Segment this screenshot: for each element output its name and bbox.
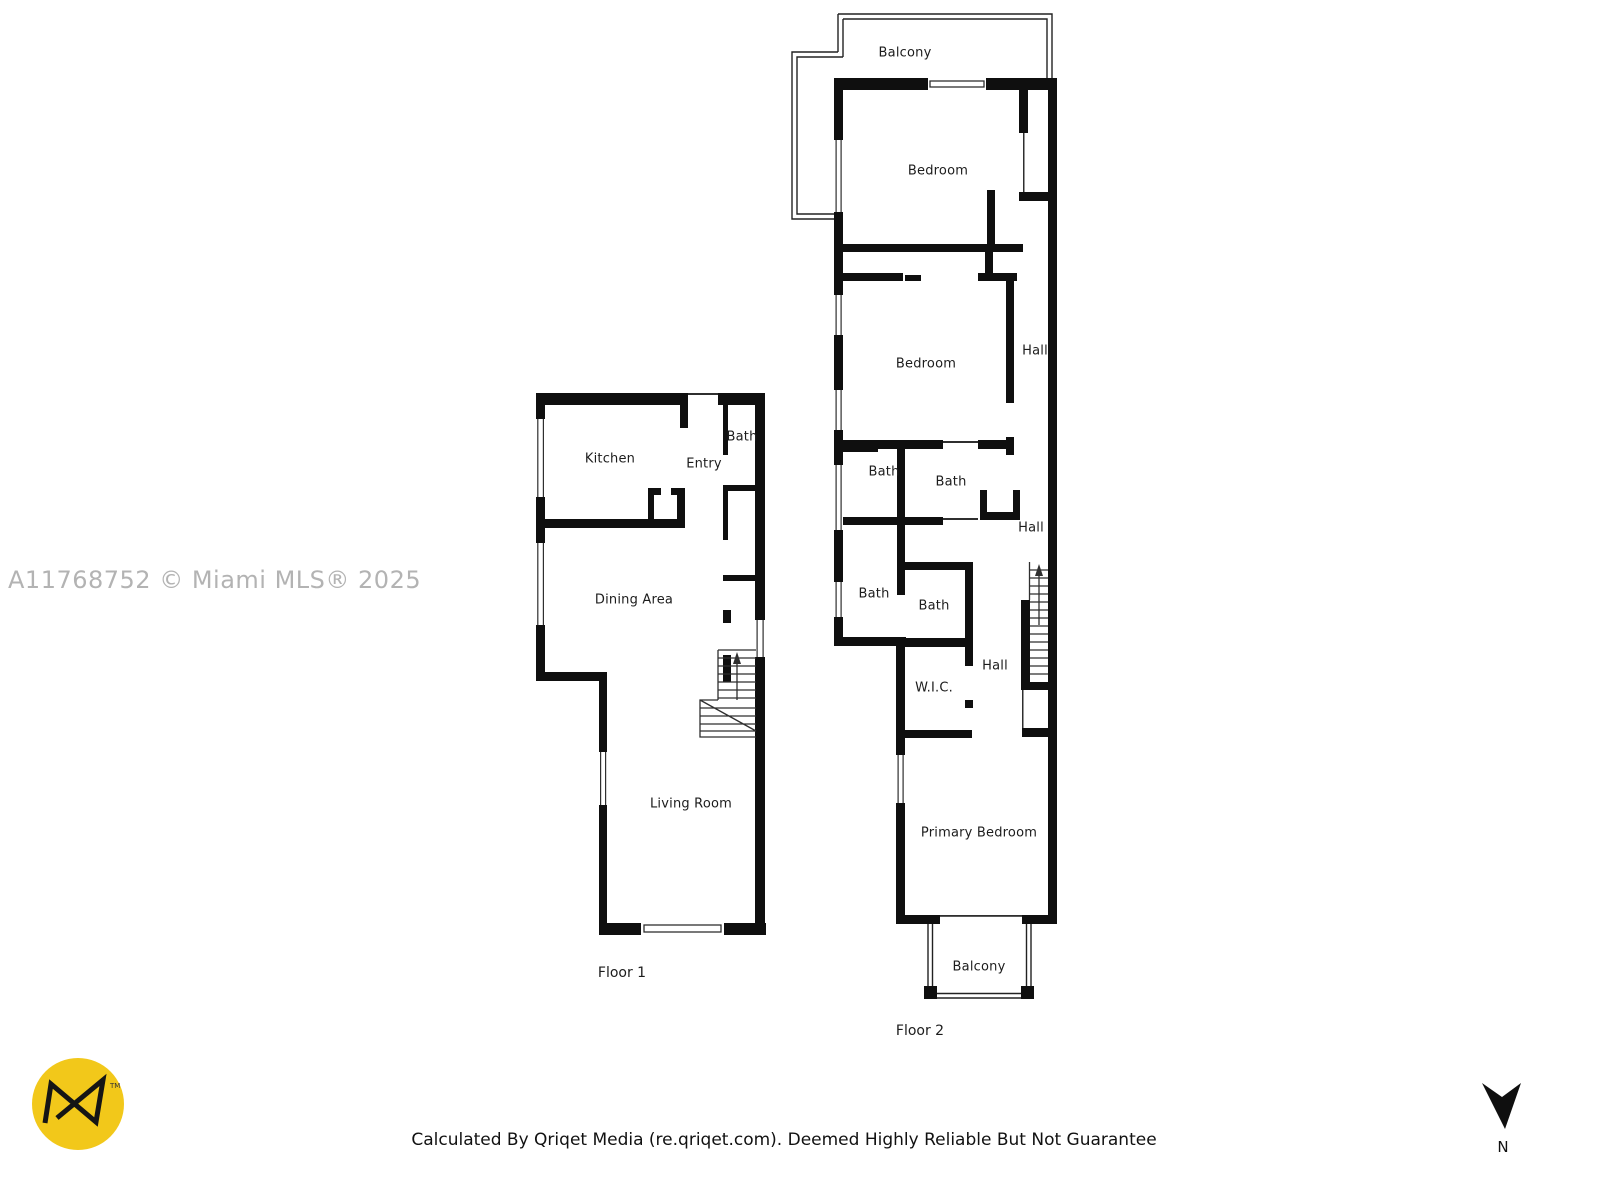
room-label-entry: Entry: [686, 457, 722, 472]
floor2-walls: [834, 78, 1057, 924]
room-label-wic: W.I.C.: [915, 681, 953, 696]
room-label-balcony-bottom: Balcony: [953, 960, 1006, 975]
floor2-title: Floor 2: [896, 1023, 944, 1039]
disclaimer-text: Calculated By Qriqet Media (re.qriqet.co…: [411, 1130, 1156, 1150]
floorplan-canvas: Kitchen Entry Bath Dining Area Living Ro…: [0, 0, 1600, 1177]
room-label-hall-3: Hall: [982, 659, 1008, 674]
room-label-bath-f1: Bath: [726, 430, 757, 445]
room-label-bath-1: Bath: [868, 465, 899, 480]
room-label-bath-3: Bath: [858, 587, 889, 602]
brand-logo: [32, 1058, 124, 1150]
floor1-title: Floor 1: [598, 965, 646, 981]
room-label-bath-4: Bath: [918, 599, 949, 614]
room-label-bedroom-2: Bedroom: [896, 357, 956, 372]
room-label-primary-bedroom: Primary Bedroom: [921, 826, 1037, 841]
room-label-bath-2: Bath: [935, 475, 966, 490]
room-label-living-room: Living Room: [650, 797, 732, 812]
north-label: N: [1497, 1138, 1508, 1156]
floor1-walls: [536, 393, 766, 935]
room-label-hall-2: Hall: [1018, 521, 1044, 536]
north-arrow-icon: [1482, 1083, 1521, 1129]
floor2-stairs: [1030, 562, 1049, 674]
mls-watermark: A11768752 © Miami MLS® 2025: [8, 566, 421, 594]
room-label-hall-1: Hall: [1022, 344, 1048, 359]
room-label-dining-area: Dining Area: [595, 593, 673, 608]
room-label-balcony-top: Balcony: [879, 46, 932, 61]
room-label-kitchen: Kitchen: [585, 452, 635, 467]
logo-trademark: TM: [110, 1082, 120, 1090]
room-label-bedroom-1: Bedroom: [908, 164, 968, 179]
